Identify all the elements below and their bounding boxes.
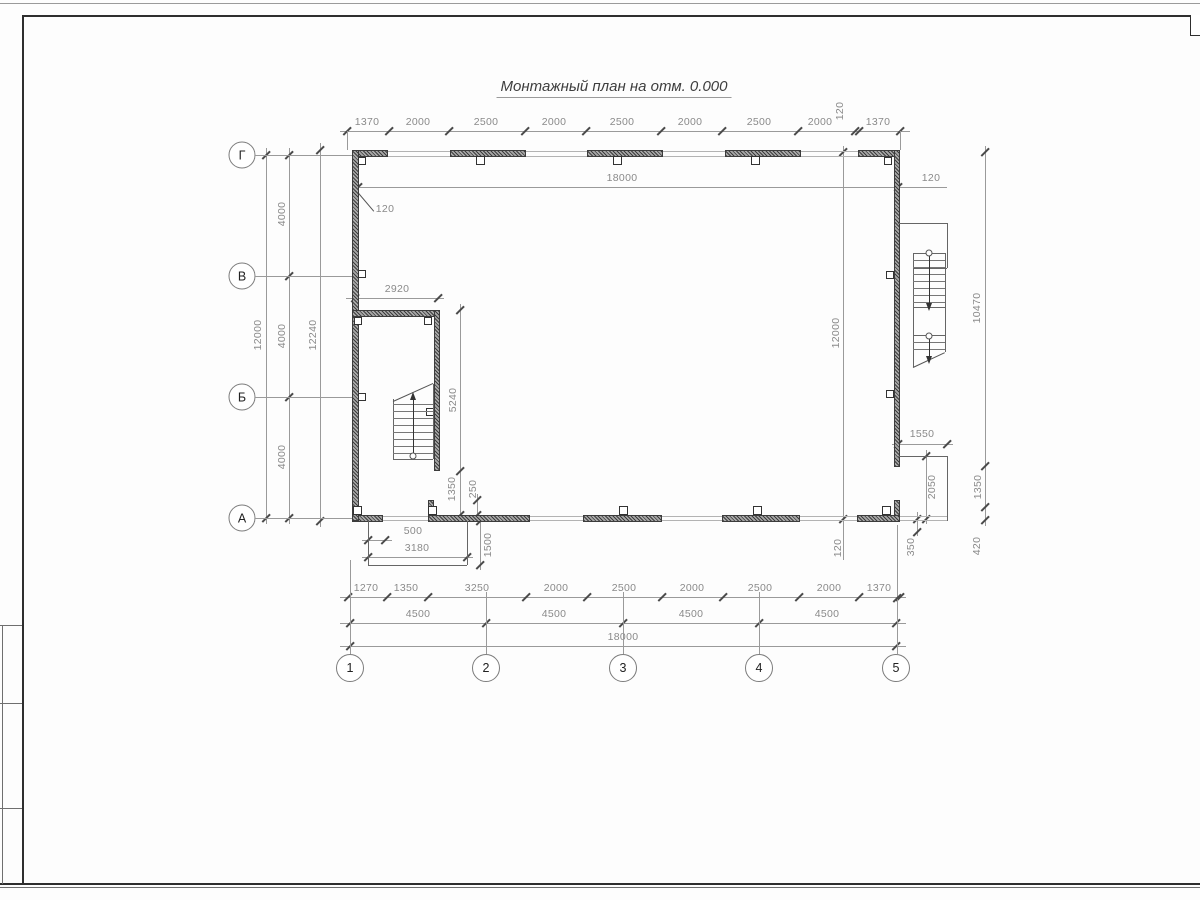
column-tab: [619, 506, 628, 515]
ext-line: [486, 592, 487, 654]
axis-circle-1: 1: [336, 654, 364, 682]
porch-edge: [368, 521, 369, 565]
frame-bottom: [0, 883, 1200, 885]
dim-line-left-4000: [289, 148, 290, 524]
notch-edge: [898, 456, 947, 457]
dim-label: 2500: [612, 582, 637, 594]
notch-edge: [947, 456, 948, 521]
dim-label: 10470: [971, 293, 983, 324]
column-tab: [424, 317, 432, 325]
dim-label: 4500: [679, 608, 704, 620]
ext-line: [623, 592, 624, 654]
stair-edge: [945, 253, 946, 352]
down-arrow-icon: [926, 303, 932, 311]
stair-walk-line: [929, 337, 930, 356]
dim-label: 2500: [748, 582, 773, 594]
dim-label: 120: [832, 539, 844, 557]
dim-label: 4000: [276, 324, 288, 349]
dim-line-left-12240: [320, 143, 321, 527]
column-tab: [882, 506, 891, 515]
dim-line-right-outer: [985, 146, 986, 526]
wall-segment: [428, 515, 530, 522]
axis-leader: [255, 518, 352, 519]
axis-leader: [255, 397, 352, 398]
dim-label: 1500: [482, 533, 494, 558]
dim-label: 12000: [252, 320, 264, 351]
dim-label: 1550: [910, 428, 935, 440]
frame-left: [22, 15, 24, 884]
dim-label: 12240: [307, 320, 319, 351]
column-tab: [886, 271, 894, 279]
dim-label: 1370: [867, 582, 892, 594]
dim-line-right-inner-12000: [843, 146, 844, 560]
dim-label: 500: [404, 525, 422, 537]
stair-edge: [393, 399, 394, 459]
dim-label: 1350: [394, 582, 419, 594]
axis-circle-Г: Г: [229, 142, 256, 169]
column-tab: [353, 506, 362, 515]
dim-label: 120: [922, 172, 940, 184]
wall-segment: [587, 150, 663, 157]
axis-circle-4: 4: [745, 654, 773, 682]
landing-edge: [947, 223, 948, 268]
ext-line: [347, 131, 348, 150]
frame-top: [22, 15, 1190, 17]
axis-circle-2: 2: [472, 654, 500, 682]
ext-line: [897, 525, 898, 654]
dim-label: 18000: [607, 172, 638, 184]
margin-line: [2, 625, 3, 884]
dim-label: 2000: [808, 116, 833, 128]
dim-label: 2000: [678, 116, 703, 128]
dim-line-left-12000: [266, 148, 267, 524]
margin-mark: [0, 703, 22, 704]
ext-line: [350, 560, 351, 654]
column-tab: [751, 156, 760, 165]
axis-leader: [255, 155, 352, 156]
dim-label: 2000: [544, 582, 569, 594]
floor-plan-canvas: 1370200025002000250020002500200012013701…: [0, 0, 1200, 900]
porch-edge: [467, 521, 468, 565]
wall-segment: [894, 150, 901, 467]
dim-label: 2500: [610, 116, 635, 128]
frame-outer-top: [0, 3, 1200, 4]
walk-line-start: [410, 453, 417, 460]
wall-segment: [450, 150, 526, 157]
dim-label: 1350: [446, 477, 458, 502]
dim-label: 4500: [406, 608, 431, 620]
column-tab: [354, 317, 362, 325]
dim-label: 4000: [276, 445, 288, 470]
dim-label: 2920: [385, 283, 410, 295]
dim-label: 120: [834, 102, 846, 120]
wall-segment: [352, 310, 440, 317]
walk-line-start: [926, 250, 933, 257]
dim-label: 1370: [355, 116, 380, 128]
axis-circle-А: А: [229, 505, 256, 532]
stair-walk-line: [413, 397, 414, 454]
column-tab: [613, 156, 622, 165]
dim-label: 2500: [747, 116, 772, 128]
landing-edge: [898, 223, 947, 224]
drawing-sheet: Монтажный план на отм. 0.000 13702000250…: [0, 0, 1200, 900]
wall-segment: [434, 310, 441, 471]
frame-corner-box: [1190, 15, 1200, 36]
column-tab: [884, 157, 892, 165]
dim-label: 2000: [406, 116, 431, 128]
axis-leader: [255, 276, 352, 277]
wall-segment: [352, 150, 359, 521]
porch-edge: [368, 565, 467, 566]
dim-label: 2000: [680, 582, 705, 594]
axis-circle-В: В: [229, 263, 256, 290]
dim-label: 4500: [542, 608, 567, 620]
dim-label: 2500: [474, 116, 499, 128]
landing-edge: [913, 268, 947, 269]
dim-label: 1370: [866, 116, 891, 128]
dim-label: 1350: [972, 475, 984, 500]
axis-circle-Б: Б: [229, 384, 256, 411]
column-tab: [358, 157, 366, 165]
axis-circle-3: 3: [609, 654, 637, 682]
stair-edge: [433, 384, 434, 459]
leader-line: [357, 191, 375, 212]
dim-label: 3180: [405, 542, 430, 554]
dim-label: 2000: [542, 116, 567, 128]
walk-line-start: [926, 333, 933, 340]
wall-segment: [722, 515, 800, 522]
column-tab: [358, 393, 366, 401]
wall-segment: [894, 500, 900, 516]
ext-line: [900, 131, 901, 150]
down-arrow-icon: [926, 356, 932, 364]
dim-line-porch-3180: [362, 557, 473, 558]
frame-bottom-inner: [0, 887, 1200, 888]
wall-segment: [725, 150, 801, 157]
dim-label: 420: [971, 537, 983, 555]
dim-label: 4000: [276, 202, 288, 227]
column-tab: [358, 270, 366, 278]
dim-label: 4500: [815, 608, 840, 620]
column-tab: [753, 506, 762, 515]
dim-label: 1270: [354, 582, 379, 594]
dim-line-top-chain: [340, 131, 910, 132]
column-tab: [428, 506, 437, 515]
wall-thickness-leader-label: 120: [376, 203, 394, 215]
dim-label: 250: [467, 480, 479, 498]
dim-label: 2000: [817, 582, 842, 594]
dim-line-stairwell-2920: [346, 298, 444, 299]
dim-label: 350: [905, 538, 917, 556]
dim-line-inner-18000: [358, 187, 947, 188]
margin-mark: [0, 808, 22, 809]
stair-walk-line: [929, 255, 930, 303]
margin-mark: [0, 625, 22, 626]
dim-label: 5240: [447, 388, 459, 413]
up-arrow-icon: [410, 392, 416, 400]
column-tab: [476, 156, 485, 165]
ext-line: [759, 592, 760, 654]
dim-label: 12000: [830, 318, 842, 349]
axis-circle-5: 5: [882, 654, 910, 682]
wall-segment: [583, 515, 662, 522]
dim-line-stairwell-5240-1350: [460, 304, 461, 521]
column-tab: [886, 390, 894, 398]
dim-label: 2050: [926, 475, 938, 500]
